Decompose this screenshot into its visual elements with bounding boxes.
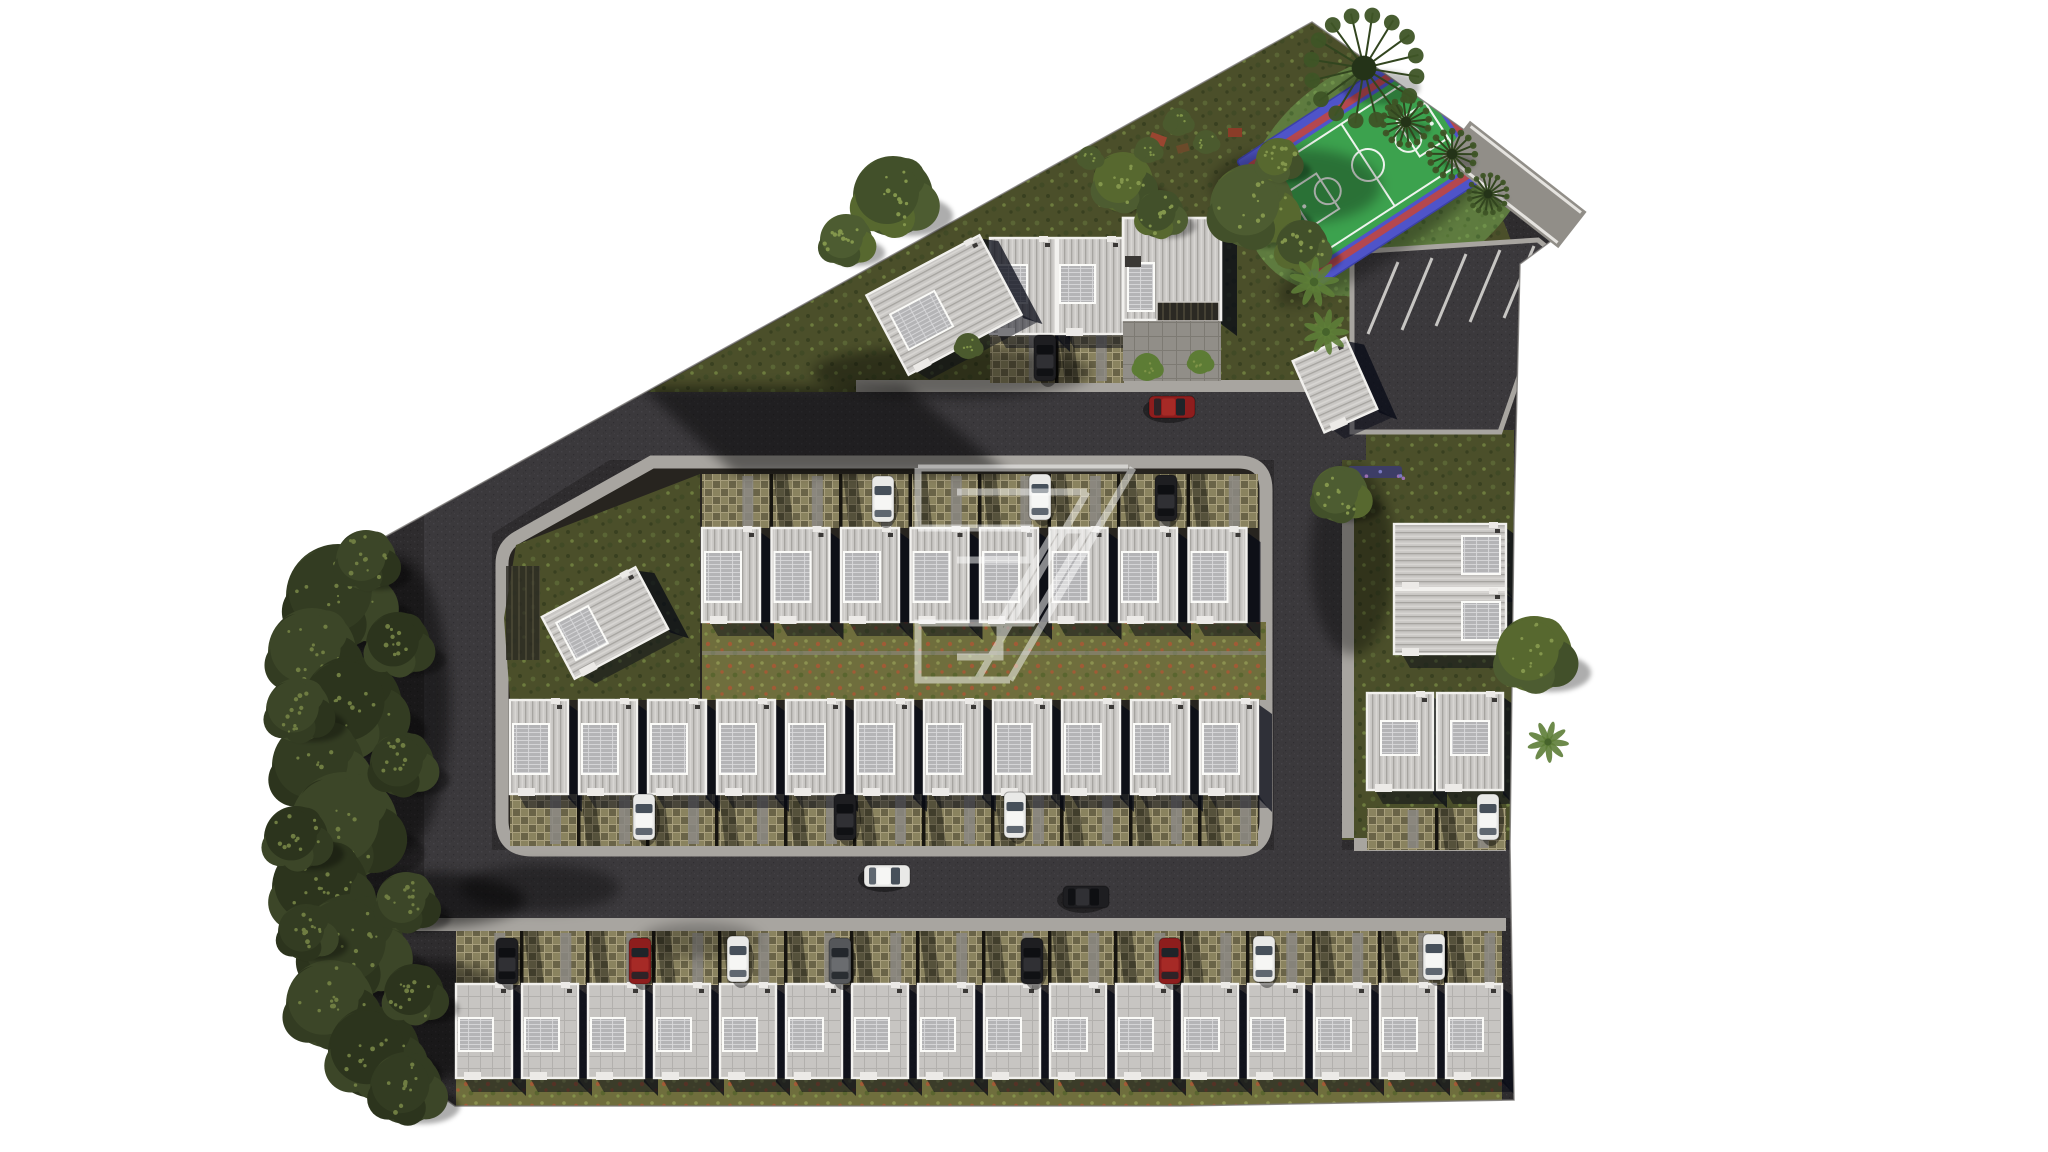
roof-step — [1066, 328, 1083, 336]
roof-vent — [1422, 698, 1427, 702]
lot-wall — [1048, 931, 1052, 985]
solar-panel — [1462, 536, 1500, 574]
townhouse-unit — [1116, 982, 1186, 1096]
roof-vent — [1045, 243, 1050, 247]
entry-walk — [1229, 476, 1240, 526]
solar-panel — [1185, 1018, 1219, 1051]
branch-tuft — [1409, 97, 1416, 104]
leaf-speckle — [1252, 194, 1256, 198]
branch-tuft — [1311, 32, 1327, 48]
leaf-speckle — [379, 1042, 383, 1046]
roof-notch — [1416, 691, 1425, 697]
car-rear-window — [869, 868, 876, 885]
car-windshield — [730, 946, 747, 955]
leaf-speckle — [287, 630, 290, 633]
leaf-speckle — [335, 810, 337, 812]
leaf-speckle — [1271, 152, 1274, 155]
branch-tuft — [1325, 17, 1341, 33]
roof-vent — [749, 533, 754, 537]
branch-tuft — [1449, 128, 1456, 135]
branch-tuft — [1425, 125, 1432, 132]
araucaria-crown — [1447, 149, 1458, 160]
leaf-speckle — [389, 1000, 393, 1004]
leaf-speckle — [412, 889, 415, 892]
roof-vent — [1492, 698, 1497, 702]
leaf-speckle — [1299, 249, 1302, 252]
roof-vent — [501, 989, 506, 993]
leaf-speckle — [296, 668, 301, 673]
roof-step — [849, 616, 866, 624]
leaf-speckle — [334, 998, 338, 1002]
roof-notch — [1419, 982, 1428, 988]
roof-notch — [1485, 982, 1494, 988]
leaf-speckle — [408, 910, 412, 914]
leaf-speckle — [319, 765, 324, 770]
branch-tuft — [1470, 160, 1477, 167]
leaf-speckle — [304, 668, 307, 671]
car-red — [1159, 938, 1186, 990]
branch-tuft — [1432, 167, 1439, 174]
roof-vent — [1491, 989, 1496, 993]
solar-panel — [1383, 1018, 1417, 1051]
roof-notch — [1489, 522, 1498, 528]
leaf-speckle — [320, 887, 323, 890]
townhouse-row — [456, 982, 1516, 1096]
leaf-speckle — [295, 727, 298, 730]
leaf-speckle — [971, 339, 973, 341]
car-white — [1029, 474, 1056, 526]
solar-panel — [705, 552, 741, 602]
leaf-speckle — [304, 692, 308, 696]
unit-shadow-south — [464, 1078, 522, 1092]
solar-panel — [723, 1018, 757, 1051]
car-rear-window — [1256, 970, 1273, 977]
solar-panel — [525, 1018, 559, 1051]
leaf-speckle — [348, 701, 352, 705]
roof-step — [1058, 1072, 1075, 1080]
leaf-speckle — [349, 881, 351, 883]
lot-wall — [1312, 931, 1316, 985]
leaf-speckle — [301, 913, 305, 917]
townhouse-unit — [772, 526, 844, 640]
car-rear-window — [1154, 399, 1161, 416]
branch-tuft — [1383, 130, 1390, 137]
branch-tuft — [1417, 101, 1424, 108]
lot-wall — [1378, 931, 1382, 985]
townhouse-unit — [1131, 698, 1203, 812]
leaf-speckle — [385, 624, 390, 629]
car-black — [1034, 335, 1061, 387]
roof-notch — [813, 526, 822, 532]
leaf-speckle — [323, 891, 326, 894]
leaf-speckle — [298, 711, 302, 715]
branch-tuft — [1502, 201, 1508, 207]
leaf-speckle — [1256, 219, 1260, 223]
roof-vent — [699, 989, 704, 993]
car-rear-window — [1162, 972, 1179, 979]
leaf-speckle — [403, 985, 406, 988]
leaf-speckle — [400, 983, 402, 985]
car-rear-window — [1158, 509, 1175, 516]
branch-tuft — [1470, 142, 1477, 149]
leaf-speckle — [289, 708, 293, 712]
roof-vent — [971, 705, 976, 709]
car-rear-window — [1032, 508, 1049, 515]
car-windshield — [1480, 804, 1497, 813]
car-windshield — [837, 804, 854, 813]
car-black — [1057, 886, 1109, 913]
roof-notch — [1103, 698, 1112, 704]
leaf-speckle — [823, 241, 827, 245]
roof-vent — [833, 705, 838, 709]
roof-notch — [759, 982, 768, 988]
leaf-speckle — [1150, 367, 1152, 369]
roof-vent — [1166, 533, 1171, 537]
flower — [1402, 476, 1406, 480]
car-windshield — [1024, 948, 1041, 957]
leaf-speckle — [278, 842, 282, 846]
leaf-speckle — [402, 764, 404, 766]
leaf-speckle — [1093, 157, 1095, 159]
leaf-speckle — [381, 769, 385, 773]
leaf-speckle — [1136, 181, 1140, 185]
leaf-speckle — [363, 535, 366, 538]
site-area — [304, 0, 1580, 1106]
tree-building-shadow — [460, 864, 620, 912]
unit-shadow-south — [1208, 794, 1268, 808]
roof-step — [932, 788, 949, 796]
townhouse-unit — [852, 982, 922, 1096]
leaf-speckle — [1149, 147, 1151, 149]
leaf-speckle — [299, 706, 303, 710]
townhouse-unit — [654, 982, 724, 1096]
solar-panel — [987, 1018, 1021, 1051]
leaf-speckle — [1200, 146, 1202, 148]
leaf-speckle — [1529, 649, 1532, 652]
leaf-speckle — [305, 939, 310, 944]
unit-shadow-south — [860, 1078, 918, 1092]
car-roof — [1162, 958, 1179, 971]
roof-step — [1388, 1072, 1405, 1080]
car-windshield — [1426, 944, 1443, 953]
palm-crown — [1544, 738, 1551, 745]
branch-tuft — [1458, 130, 1465, 137]
solar-panel — [855, 1018, 889, 1051]
leaf-speckle — [358, 1059, 362, 1063]
leaf-speckle — [327, 891, 330, 894]
entry-walk — [812, 476, 823, 526]
solar-panel — [1065, 724, 1101, 774]
araucaria-tree — [1426, 128, 1478, 180]
townhouse-unit — [1314, 982, 1384, 1096]
canopy-lobe — [1137, 192, 1175, 230]
leaf-speckle — [963, 347, 965, 349]
leaf-speckle — [411, 1067, 413, 1069]
leaf-speckle — [1150, 154, 1152, 156]
roof-notch — [891, 982, 900, 988]
leaf-speckle — [1120, 180, 1123, 183]
lot-wall — [982, 931, 986, 985]
car-roof — [875, 496, 892, 509]
roof-vent — [695, 705, 700, 709]
leaf-speckle — [1159, 216, 1162, 219]
roof-notch — [743, 526, 752, 532]
solar-panel — [927, 724, 963, 774]
unit-shadow-south — [1322, 1078, 1380, 1092]
roof-vent — [557, 705, 562, 709]
roof-step — [464, 1072, 481, 1080]
leaf-speckle — [327, 603, 330, 606]
entry-walk — [560, 933, 571, 983]
townhouse-unit — [522, 982, 592, 1096]
canopy-lobe — [378, 875, 426, 923]
canopy-lobe — [372, 735, 423, 786]
branch-tuft — [1426, 150, 1433, 157]
sidewalk — [336, 918, 1506, 931]
solar-panel — [513, 724, 549, 774]
car-red — [1143, 396, 1195, 423]
leaf-speckle — [384, 643, 389, 648]
leaf-speckle — [287, 814, 291, 818]
leaf-speckle — [366, 855, 370, 859]
solar-panel — [789, 724, 825, 774]
solar-panel — [459, 1018, 493, 1051]
unit-shadow-south — [530, 1078, 588, 1092]
roof-step — [992, 1072, 1009, 1080]
leaf-speckle — [337, 595, 339, 597]
leaf-speckle — [826, 247, 830, 251]
branch-tuft — [1328, 106, 1344, 122]
branch-tuft — [1504, 194, 1510, 200]
leaf-speckle — [1149, 151, 1151, 153]
townhouse-unit — [1380, 982, 1450, 1096]
leaf-speckle — [330, 1004, 334, 1008]
lot-wall — [1187, 474, 1191, 528]
roof-step — [1322, 1072, 1339, 1080]
car-roof — [1480, 814, 1497, 827]
entry-walk — [956, 933, 967, 983]
car-roof — [1158, 495, 1175, 508]
leaf-speckle — [1084, 153, 1086, 155]
leaf-speckle — [1539, 652, 1542, 655]
leaf-speckle — [1152, 370, 1154, 372]
car-black — [1021, 938, 1048, 990]
branch-tuft — [1392, 99, 1399, 106]
leaf-speckle — [903, 223, 906, 226]
car-rear-window — [1068, 889, 1075, 906]
branch-tuft — [1476, 208, 1482, 214]
leaf-speckle — [406, 984, 410, 988]
entry-walk — [951, 476, 962, 526]
roof-step — [1190, 1072, 1207, 1080]
car-rear-window — [1426, 968, 1443, 975]
unit-shadow-south — [1070, 794, 1130, 808]
site-plan-rendering — [0, 0, 2048, 1152]
leaf-speckle — [1148, 372, 1150, 374]
leaf-speckle — [1211, 135, 1213, 137]
leaf-speckle — [393, 653, 396, 656]
leaf-speckle — [1238, 225, 1242, 229]
leaf-speckle — [414, 1077, 417, 1080]
branch-tuft — [1448, 173, 1455, 180]
leaf-speckle — [837, 233, 840, 236]
branch-tuft — [1480, 173, 1486, 179]
leaf-speckle — [841, 236, 845, 240]
townhouse-unit — [1182, 982, 1252, 1096]
branch-tuft — [1465, 167, 1472, 174]
townhouse-unit — [1248, 982, 1318, 1096]
leaf-speckle — [898, 200, 902, 204]
leaf-speckle — [1512, 657, 1514, 659]
leaf-speckle — [310, 647, 314, 651]
leaf-speckle — [363, 557, 367, 561]
car-roof — [837, 814, 854, 827]
leaf-speckle — [351, 928, 354, 931]
leaf-speckle — [885, 176, 888, 179]
branch-tuft — [1344, 8, 1360, 24]
roof-step — [1197, 616, 1214, 624]
leaf-speckle — [385, 1039, 388, 1042]
branch-tuft — [1457, 172, 1464, 179]
roof-vent — [1247, 705, 1252, 709]
car-rear-window — [875, 510, 892, 517]
car-windshield — [636, 804, 653, 813]
branch-tuft — [1467, 196, 1473, 202]
solar-panel — [657, 1018, 691, 1051]
leaf-speckle — [327, 981, 331, 985]
lot-wall — [839, 474, 843, 528]
roof-step — [794, 1072, 811, 1080]
branch-tuft — [1469, 182, 1475, 188]
leaf-speckle — [344, 887, 348, 891]
leaf-speckle — [387, 1081, 391, 1085]
leaf-speckle — [321, 651, 325, 655]
branch-tuft — [1504, 186, 1510, 192]
leaf-speckle — [274, 821, 277, 824]
car-rear-window — [636, 828, 653, 835]
roof-step — [1070, 788, 1087, 796]
leaf-speckle — [285, 714, 289, 718]
car-rear-window — [632, 972, 649, 979]
leaf-speckle — [1113, 176, 1116, 179]
bush-lobe — [1206, 137, 1220, 151]
leaf-speckle — [354, 1083, 357, 1086]
roof-vent — [1495, 529, 1500, 533]
leaf-speckle — [403, 758, 407, 762]
car-black — [834, 794, 861, 846]
leaf-speckle — [893, 193, 897, 197]
leaf-speckle — [396, 752, 399, 755]
solar-panel — [1122, 552, 1158, 602]
bush-lobe — [1090, 153, 1104, 167]
leaf-speckle — [1181, 114, 1183, 116]
bush-lobe — [954, 341, 968, 355]
leaf-speckle — [1265, 151, 1268, 154]
leaf-speckle — [1126, 178, 1129, 181]
townhouse-unit — [702, 526, 774, 640]
leaf-speckle — [287, 843, 291, 847]
leaf-speckle — [1300, 243, 1303, 246]
roof-step — [926, 1072, 943, 1080]
flower — [1378, 470, 1382, 474]
car-roof — [832, 958, 849, 971]
leaf-speckle — [299, 628, 302, 631]
leaf-speckle — [399, 1104, 403, 1108]
palm-crown — [1322, 328, 1330, 336]
solar-panel — [720, 724, 756, 774]
roof-notch — [827, 698, 836, 704]
leaf-speckle — [1200, 144, 1202, 146]
leaf-speckle — [311, 925, 314, 928]
unit-shadow-south — [849, 622, 909, 636]
leaf-speckle — [396, 651, 400, 655]
entry-walk — [1484, 933, 1495, 983]
branch-tuft — [1465, 135, 1472, 142]
canopy-lobe — [1313, 469, 1358, 514]
bush-lobe — [1200, 357, 1214, 371]
leaf-speckle — [408, 998, 411, 1001]
branch-tuft — [1409, 68, 1425, 84]
leaf-speckle — [309, 918, 312, 921]
roof-step — [794, 788, 811, 796]
leaf-speckle — [1283, 238, 1287, 242]
car-white — [633, 794, 660, 846]
leaf-speckle — [372, 703, 376, 707]
leaf-speckle — [1217, 206, 1220, 209]
branch-tuft — [1304, 73, 1320, 89]
leaf-speckle — [315, 653, 318, 656]
leaf-speckle — [1520, 637, 1523, 640]
leaf-speckle — [370, 1046, 375, 1051]
branch-tuft — [1474, 176, 1480, 182]
leaf-speckle — [1183, 120, 1185, 122]
roof-step — [596, 1072, 613, 1080]
leaf-speckle — [404, 988, 409, 993]
townhouse-unit — [1437, 691, 1517, 808]
leaf-speckle — [966, 346, 968, 348]
branch-tuft — [1405, 141, 1412, 148]
roof-vent — [567, 989, 572, 993]
roof-notch — [1034, 698, 1043, 704]
leaf-speckle — [370, 963, 374, 967]
roof-notch — [1221, 982, 1230, 988]
leaf-speckle — [282, 845, 286, 849]
leaf-speckle — [350, 705, 355, 710]
leaf-speckle — [1331, 477, 1334, 480]
car-black — [1155, 475, 1182, 527]
leaf-speckle — [969, 346, 971, 348]
car-roof — [1032, 494, 1049, 507]
solar-panel — [1053, 1018, 1087, 1051]
roof-notch — [1107, 236, 1116, 242]
branch-tuft — [1423, 108, 1430, 115]
solar-panel — [1203, 724, 1239, 774]
leaf-speckle — [1153, 231, 1157, 235]
leaf-speckle — [1144, 147, 1146, 149]
leaf-speckle — [312, 643, 315, 646]
leaf-speckle — [336, 827, 341, 832]
unit-shadow-south — [926, 1078, 984, 1092]
roof-vent — [1495, 595, 1500, 599]
bush-lobe — [1132, 361, 1147, 376]
bush-lobe — [1077, 153, 1090, 166]
leaf-speckle — [394, 1003, 397, 1006]
leaf-speckle — [352, 817, 356, 821]
roof-step — [662, 1072, 679, 1080]
leaf-speckle — [1327, 496, 1330, 499]
leaf-speckle — [296, 756, 299, 759]
leaf-speckle — [392, 745, 396, 749]
